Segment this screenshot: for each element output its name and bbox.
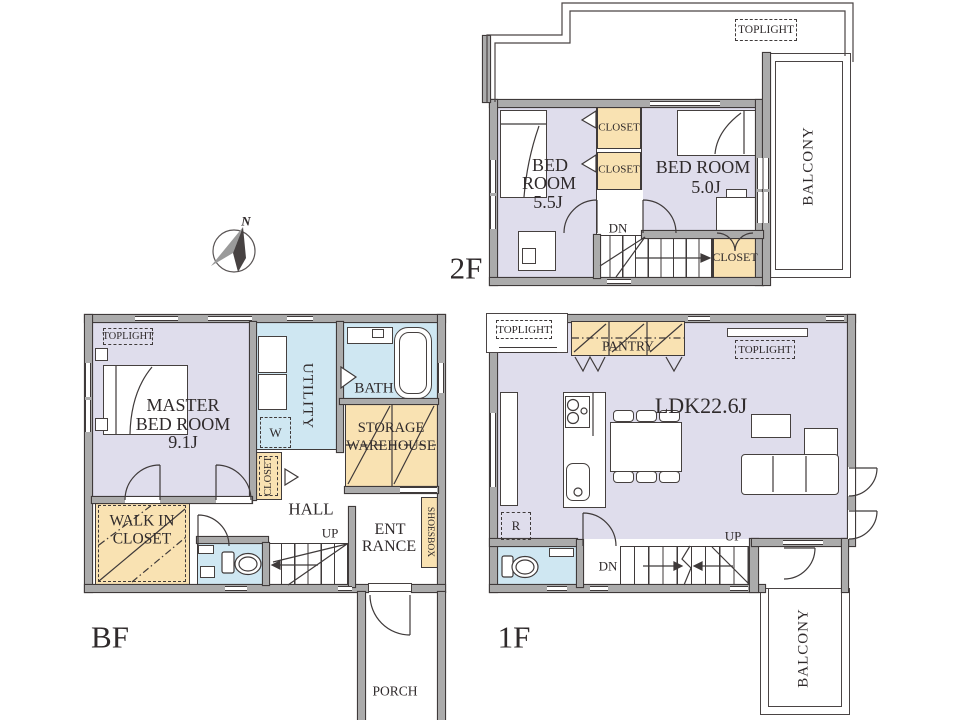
bf-toilet-shelf (198, 545, 214, 554)
compass-north-label: N (241, 215, 250, 228)
bf-floor-label: BF (91, 622, 129, 653)
wall (490, 539, 577, 546)
door-opening (216, 497, 251, 503)
window (338, 586, 352, 591)
1f-dining-table (610, 422, 682, 472)
1f-pantry-label: PANTRY (602, 339, 654, 353)
door-opening (848, 510, 855, 539)
window (490, 160, 496, 193)
wall (337, 322, 343, 452)
2f-bedroom2-name: BED ROOM (656, 158, 751, 176)
bf-pillar (95, 418, 108, 431)
1f-floor-label: 1F (498, 622, 531, 653)
bf-utility-label: UTILITY (300, 363, 315, 429)
wall (750, 539, 758, 592)
window (650, 101, 720, 106)
bf-porch-label: PORCH (372, 684, 417, 698)
1f-ldk-label: LDK22.6J (655, 395, 747, 417)
window (438, 363, 444, 393)
wall (842, 539, 848, 592)
window (499, 347, 557, 353)
wall (263, 543, 269, 585)
bf-entrance-step (368, 583, 412, 592)
toplight-text: TOPLIGHT (102, 331, 153, 342)
window (490, 413, 496, 487)
window (607, 279, 631, 284)
bf-bath-sink (347, 327, 393, 344)
1f-toilet-shelf (549, 548, 574, 557)
window (757, 158, 769, 189)
2f-toplight-label: TOPLIGHT (735, 19, 797, 41)
2f-bedroom2-size: 5.0J (691, 178, 721, 196)
floor-plan-page: TOPLIGHT CLOSET CLOSET BED ROOM 5.5J BED… (0, 0, 960, 720)
window (757, 192, 769, 223)
window (208, 316, 252, 321)
1f-balcony-access (758, 546, 842, 588)
bf-toplight-label: TOPLIGHT (103, 328, 153, 345)
wall (197, 537, 268, 543)
bf-closet-label: CLOSET (264, 456, 275, 496)
wall (412, 585, 445, 592)
washer-text: W (269, 425, 281, 441)
1f-balcony-label: BALCONY (797, 608, 812, 688)
toplight-text: TOPLIGHT (497, 324, 551, 336)
1f-fridge-box: R (501, 512, 531, 540)
bf-entrance-name-1: ENT (374, 522, 405, 538)
1f-toplight-right-label: TOPLIGHT (735, 340, 795, 359)
window (135, 316, 178, 321)
window (826, 316, 844, 321)
1f-dn-label: DN (599, 560, 618, 573)
window (225, 586, 247, 591)
wall (85, 315, 92, 592)
fridge-text: R (512, 518, 521, 534)
2f-balcony-label: BALCONY (802, 126, 817, 206)
bf-wic-name-1: WALK IN (110, 513, 175, 529)
bf-master-name-2: BED ROOM (136, 415, 231, 433)
door-opening (848, 467, 855, 496)
bf-up-label: UP (322, 527, 339, 540)
wall (642, 231, 763, 238)
window (783, 540, 823, 545)
bf-wic-name-2: CLOSET (113, 531, 172, 547)
bf-entrance-name-2: RANCE (362, 539, 416, 555)
1f-counter (500, 392, 518, 506)
2f-closet-c-label: CLOSET (712, 251, 757, 263)
wall (438, 592, 445, 720)
1f-chair (613, 471, 634, 483)
1f-chair (659, 471, 680, 483)
1f-sofa (741, 454, 839, 495)
1f-toplight-left-label: TOPLIGHT (496, 320, 552, 339)
window (730, 586, 748, 591)
bf-storage-name-2: WAREHOUSE (346, 439, 435, 454)
1f-sofa-chaise (804, 428, 838, 456)
2f-closet-a-label: CLOSET (598, 123, 640, 134)
door-opening (125, 497, 160, 503)
bf-hall-label: HALL (288, 501, 333, 518)
window (490, 196, 496, 229)
1f-stairs (620, 546, 750, 585)
window (590, 586, 608, 591)
bf-corner-sink (200, 566, 215, 578)
toplight-text: TOPLIGHT (738, 344, 792, 356)
wall (438, 315, 445, 592)
compass-icon (211, 227, 255, 272)
2f-stairs (597, 235, 713, 278)
2f-bedroom1-name-2: ROOM (522, 174, 576, 192)
2f-bed2 (677, 110, 758, 156)
1f-up-label: UP (725, 530, 742, 543)
window (85, 400, 91, 432)
2f-closet-b-label: CLOSET (598, 165, 640, 176)
bf-stairs (268, 543, 349, 585)
bf-master-size: 9.1J (168, 433, 198, 451)
1f-chair (636, 471, 657, 483)
bf-master-name-1: MASTER (146, 396, 219, 414)
1f-chair (636, 410, 657, 422)
2f-chair1 (522, 248, 536, 264)
bf-bath-label: BATH (354, 382, 393, 397)
2f-bedroom1-size: 5.5J (533, 193, 563, 211)
wall (577, 540, 583, 587)
bf-bathtub-inner (399, 332, 427, 394)
window (287, 316, 313, 321)
bf-utility-shelf (258, 374, 287, 410)
window (547, 586, 567, 591)
wall (358, 592, 365, 720)
wall (490, 100, 763, 107)
2f-floor-label: 2F (450, 253, 483, 284)
window (688, 316, 710, 321)
1f-stove (565, 396, 590, 428)
bf-utility-shelf (258, 336, 287, 373)
bf-pillar (95, 348, 108, 361)
2f-bedroom1-name-1: BED (532, 156, 568, 174)
bf-bath-faucet (372, 329, 384, 338)
wall (340, 399, 438, 404)
bf-washer-box: W (260, 417, 291, 448)
wall (349, 507, 355, 587)
bf-storage-name-1: STORAGE (358, 421, 425, 436)
1f-toplight-right-bar (727, 328, 808, 337)
wall (490, 585, 765, 592)
window (400, 487, 437, 493)
2f-chair2 (726, 189, 747, 198)
wall (594, 235, 600, 278)
wall (250, 322, 256, 500)
window (85, 363, 91, 397)
2f-dn-label: DN (609, 222, 628, 235)
toplight-text: TOPLIGHT (738, 24, 794, 36)
2f-desk2 (716, 197, 758, 231)
wall (483, 36, 490, 102)
1f-chair (613, 410, 634, 422)
1f-sink (566, 463, 590, 501)
1f-coffee-table (751, 414, 791, 438)
bf-shoesbox-label: SHOESBOX (424, 507, 434, 557)
